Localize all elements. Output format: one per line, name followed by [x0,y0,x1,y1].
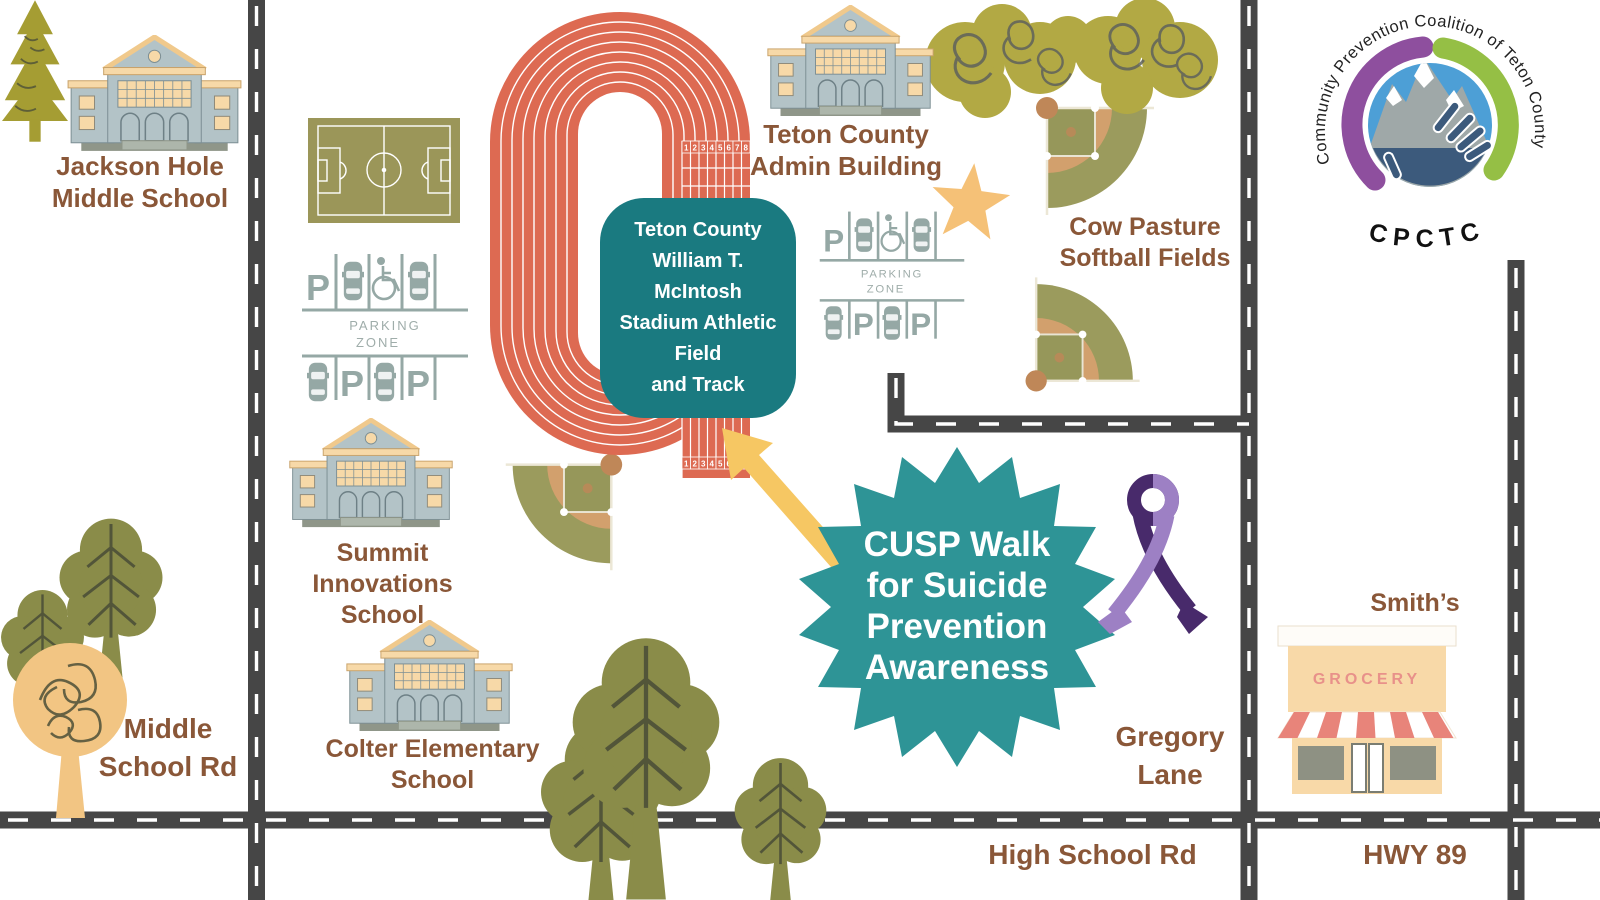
event-map: P PARKING ZONE P P [0,0,1600,900]
label-summit-innovations: Summit Innovations School [270,538,495,631]
stadium-label-line: Stadium Athletic [600,308,796,339]
svg-text:4: 4 [709,144,714,153]
stadium-label-line: Teton County [600,215,796,246]
label-line: School [320,765,545,796]
stadium-label-line: McIntosh [600,277,796,308]
label-middle-school-rd: Middle School Rd [58,710,278,785]
label-line: Middle School [30,182,250,214]
parking-zone-admin [820,212,965,343]
svg-text:3: 3 [701,144,706,153]
tree [735,758,827,900]
svg-text:2: 2 [692,460,697,469]
svg-text:2: 2 [692,144,697,153]
admin-building [768,7,933,116]
svg-text:6: 6 [726,144,731,153]
label-line: Teton County [736,118,956,150]
label-hwy-89: HWY 89 [1340,838,1490,873]
label-colter-elementary: Colter Elementary School [320,734,545,796]
label-jackson-hole-middle-school: Jackson Hole Middle School [30,150,250,214]
label-line: Lane [1075,756,1265,794]
svg-text:4: 4 [709,460,714,469]
baseball-diamond-center [506,454,622,570]
soccer-field [308,118,460,223]
label-cow-pasture-softball: Cow Pasture Softball Fields [1040,212,1250,274]
stadium-label-line: and Track [600,370,796,401]
svg-text:CPCTC: CPCTC [1366,215,1488,253]
label-line: Summit Innovations [270,538,495,600]
softball-diamond-north [1036,97,1154,215]
event-badge-line: Awareness [817,647,1097,688]
label-line: Softball Fields [1040,243,1250,274]
stadium-label-box: Teton County William T. McIntosh Stadium… [600,198,796,418]
svg-text:5: 5 [718,144,723,153]
label-smiths: Smith’s [1340,588,1490,619]
label-line: Admin Building [736,150,956,182]
event-badge-text: CUSP Walk for Suicide Prevention Awarene… [817,524,1097,688]
softball-diamond-south [1026,277,1140,391]
summit-innovations-building [290,420,452,527]
grocery-sign: GROCERY [1313,671,1421,688]
label-high-school-rd: High School Rd [960,838,1225,873]
colter-elementary-building [347,622,512,731]
jackson-hole-middle-school-building [68,37,241,151]
event-badge-line: CUSP Walk [817,524,1097,565]
logo-acronym: CPCTC [1366,215,1488,253]
label-line: Middle [58,710,278,748]
label-line: Gregory [1075,718,1265,756]
cpctc-logo: Community Prevention Coalition of Teton … [1311,12,1549,253]
label-gregory-lane: Gregory Lane [1075,718,1265,793]
label-line: Jackson Hole [30,150,250,182]
svg-text:1: 1 [684,460,689,469]
awareness-ribbon [1098,481,1208,634]
grocery-store: GROCERY [1278,626,1456,794]
svg-text:5: 5 [718,460,723,469]
label-line: Colter Elementary [320,734,545,765]
stadium-label-line: Field [600,339,796,370]
event-badge-line: for Suicide [817,565,1097,606]
pine-tree [2,0,68,141]
label-line: Cow Pasture [1040,212,1250,243]
label-line: School Rd [58,748,278,786]
svg-text:3: 3 [701,460,706,469]
label-line: School [270,600,495,631]
svg-text:1: 1 [684,144,689,153]
label-teton-county-admin: Teton County Admin Building [736,118,956,182]
stadium-label-line: William T. [600,246,796,277]
bushes [925,0,1218,118]
parking-zone-west [302,254,468,404]
event-badge-line: Prevention [817,606,1097,647]
